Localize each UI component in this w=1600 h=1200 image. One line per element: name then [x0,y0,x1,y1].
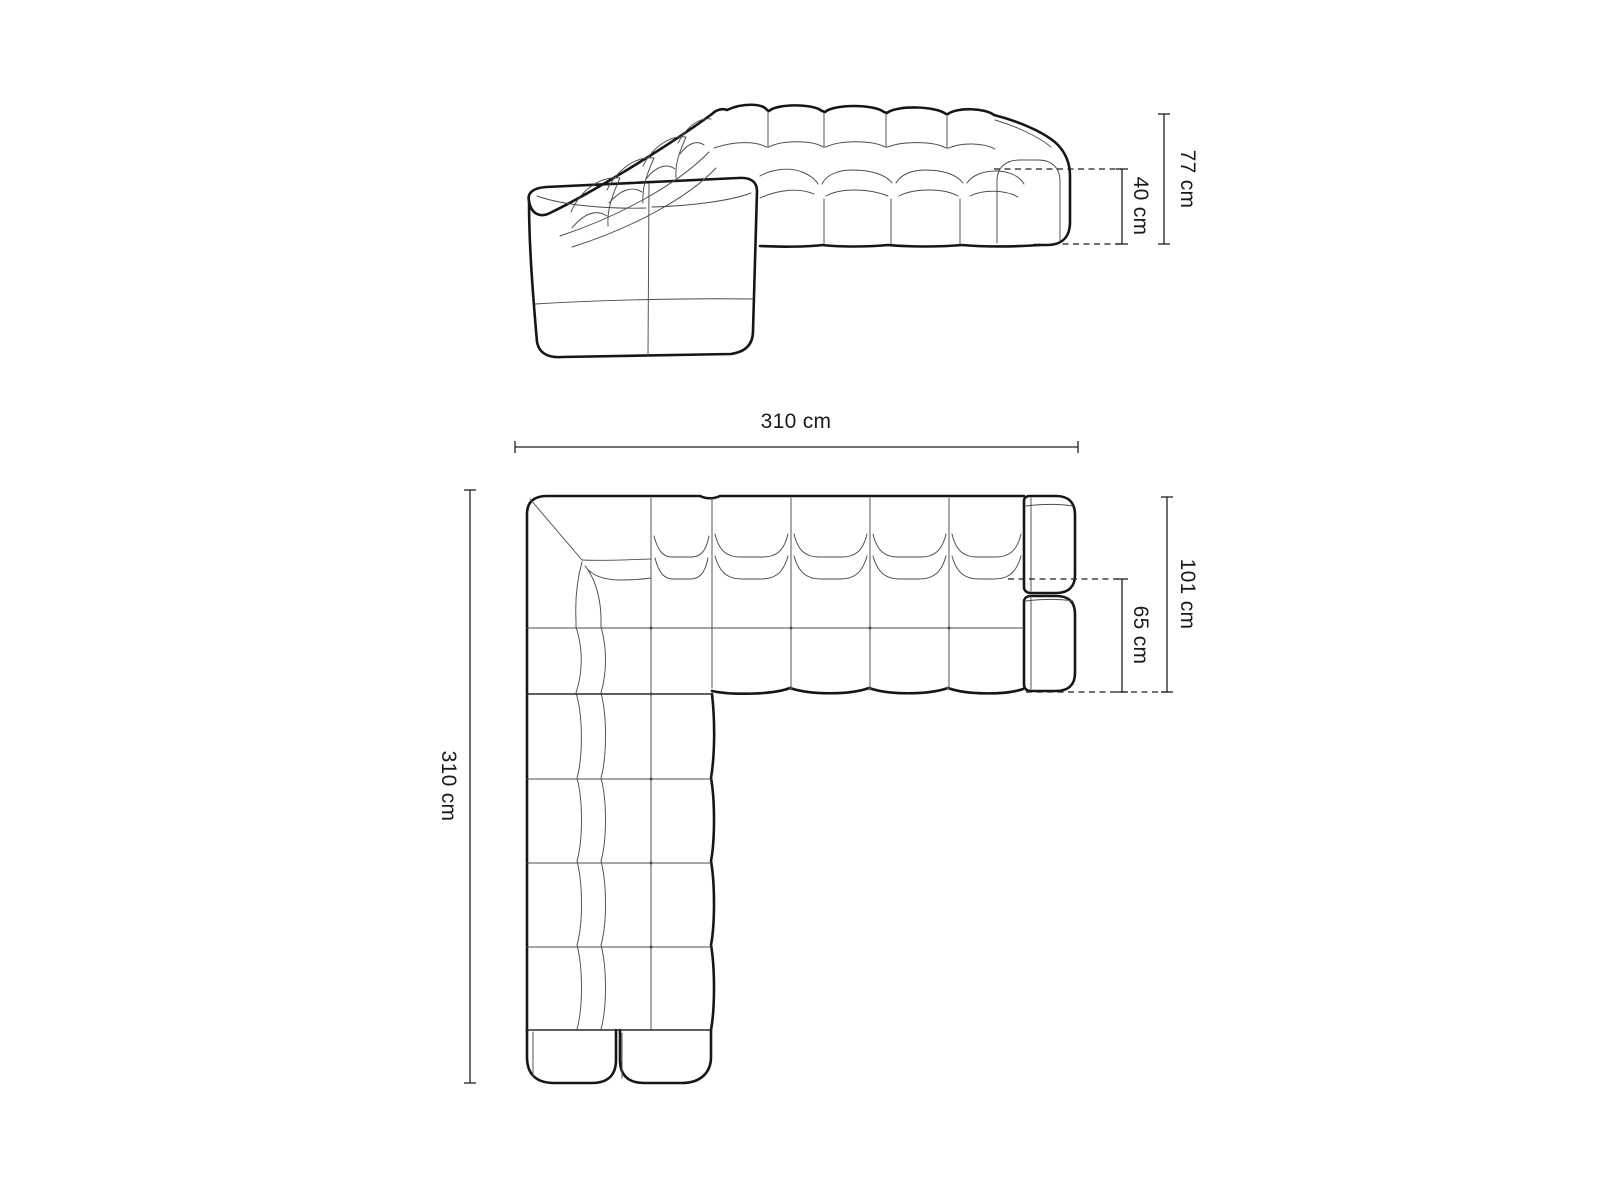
corner-curve-row2 [585,566,651,580]
top-plan-view: 310 cm 310 cm 65 cm 101 cm [437,410,1199,1083]
seat-height-label: 40 cm [1129,177,1152,236]
dimension-total-width: 310 cm [515,410,1078,453]
chaise-outline [529,178,757,357]
plan-leg-right-edge [711,694,714,1030]
width-label: 310 cm [761,410,832,433]
back-mid-seam [714,142,995,149]
total-height-label: 77 cm [1176,150,1199,209]
plan-leg-horizontal-seams [527,694,712,1030]
chaise-center-seam [648,184,649,356]
dimension-total-height: 77 cm [1158,114,1199,244]
plan-backrest-scallops-top [654,534,1021,557]
leg-tufting-line-a [576,562,582,1029]
seat-depth-label: 65 cm [1129,606,1152,665]
chaise-cushion-curve-left [537,196,646,208]
back-cushions-top-outline [712,105,994,115]
corner-diagonal-seam [530,499,582,560]
sofa-dimension-drawing: 40 cm 77 cm [0,0,1600,1200]
depth-label: 310 cm [437,751,460,822]
corner-curve-row1 [582,559,651,560]
plan-armrest-bottom-pad [1024,596,1075,691]
dimension-total-depth-left: 310 cm [437,490,476,1083]
dimension-drawing-page: 40 cm 77 cm [0,0,1600,1200]
dimension-seat-height: 40 cm [994,169,1152,244]
base-outline [760,245,1040,247]
plan-seat-front-edge [712,688,1023,694]
plan-end-cushion-left [527,1030,616,1083]
plan-end-cushion-right [620,1030,711,1083]
chaise-horizontal-seam [535,299,752,304]
total-depth-label: 101 cm [1176,559,1199,630]
seam-intersection-dots [650,627,951,949]
dimension-total-depth-right: 101 cm [1161,497,1199,692]
plan-backrest-scallops-front [655,556,1021,579]
backrest-ridge-outline [529,114,712,215]
chaise-cushion-curve-right [652,193,751,207]
leg-tufting-line-b [588,570,606,1029]
plan-vertical-seams [712,498,949,690]
front-elevation-view: 40 cm 77 cm [529,105,1199,357]
seat-cushion-scallops [760,169,1024,198]
front-face-seams [824,199,960,244]
plan-end-cushion-inner-lines [533,1032,622,1078]
